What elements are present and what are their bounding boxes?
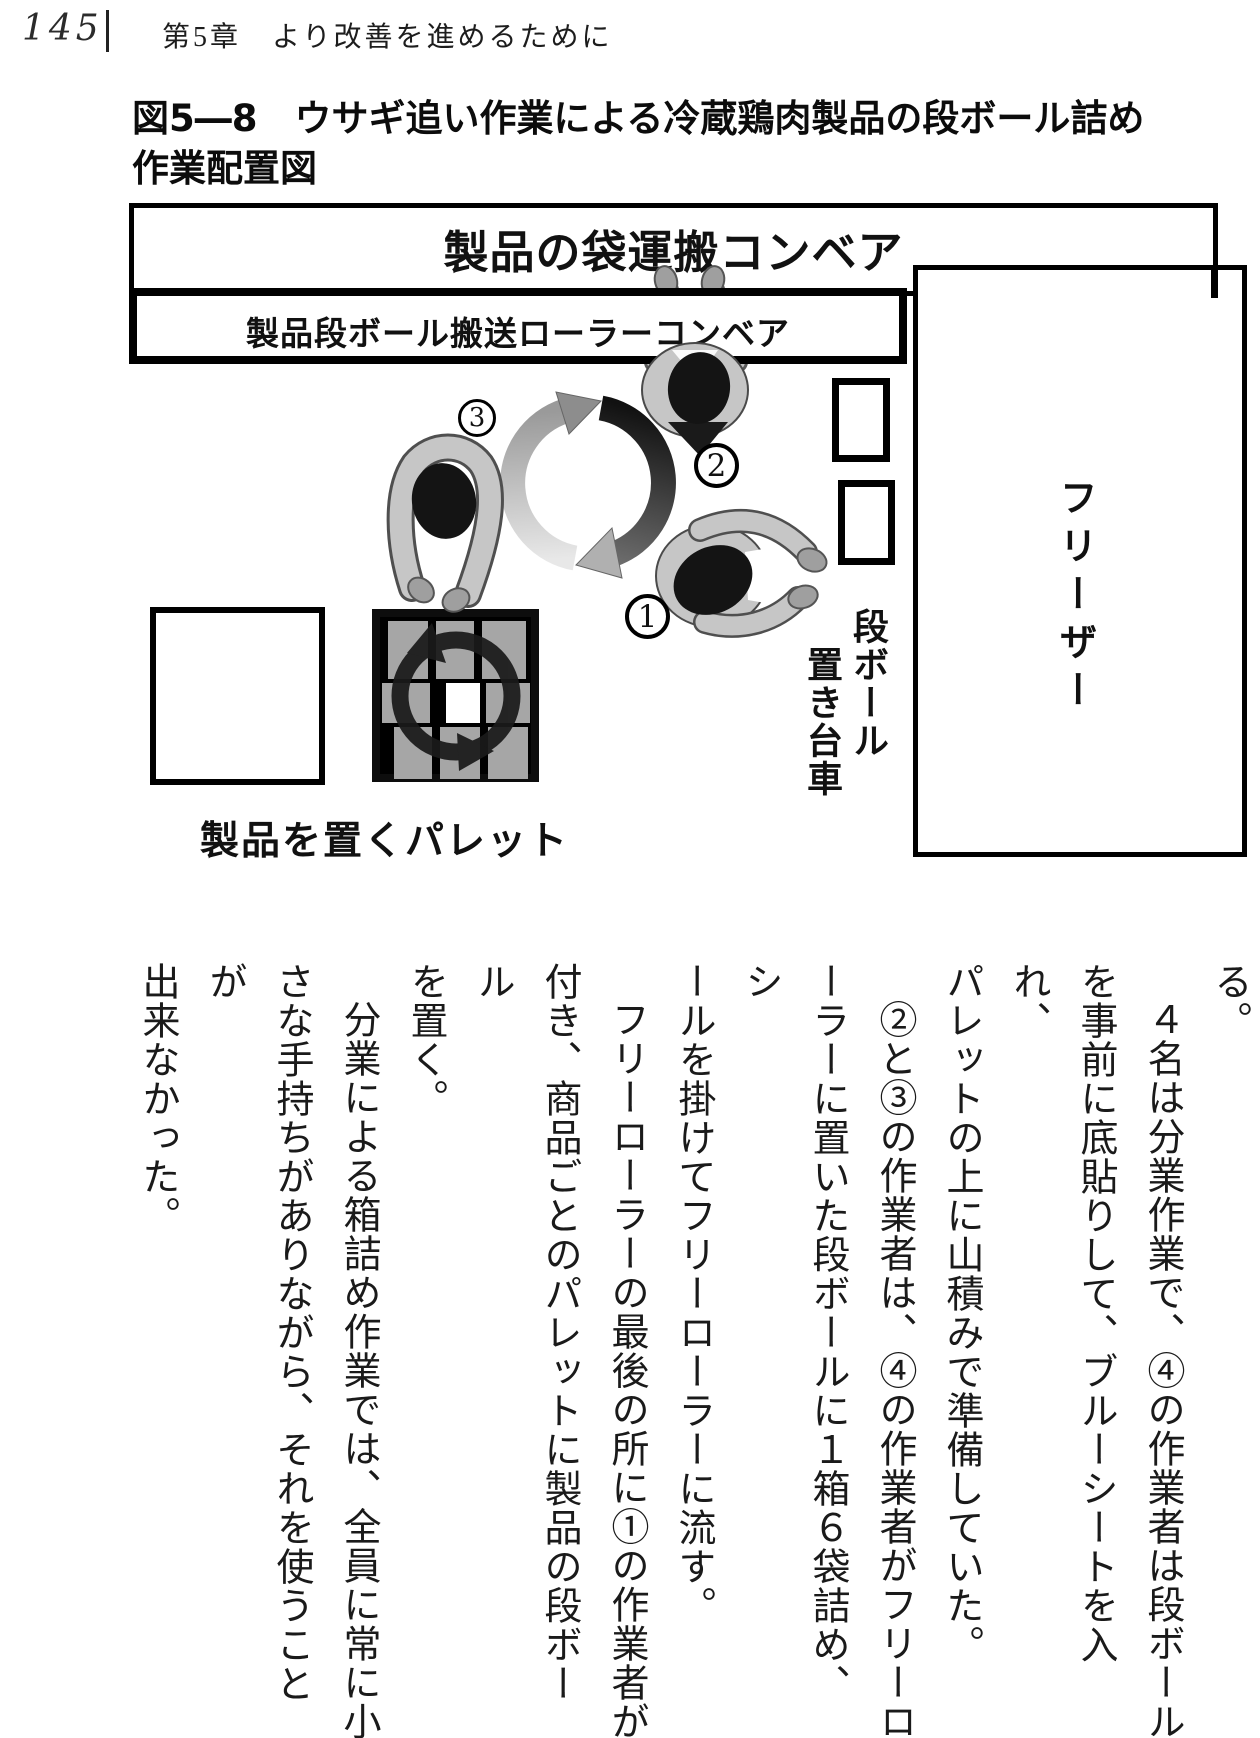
text-column: ②と③の作業者は、④の作業者がフリーロ xyxy=(860,962,927,1738)
worker-figure-3 xyxy=(401,448,490,617)
carton xyxy=(486,683,530,723)
worker2-number-badge: 2 xyxy=(694,443,739,488)
text-column: を事前に底貼りして、ブルーシートを入れ、 xyxy=(994,962,1128,1738)
freezer-label: フリーザー xyxy=(1048,478,1103,728)
text-column: る。 xyxy=(1195,962,1260,1738)
conveyor-edge-line xyxy=(1211,270,1218,298)
worker3-head xyxy=(406,458,482,544)
text-column: ールを掛けてフリーローラーに流す。 xyxy=(659,962,726,1738)
carton xyxy=(436,621,474,679)
pallet-label: 製品を置くパレット xyxy=(200,810,569,866)
worker1-hand xyxy=(794,544,830,576)
roller-conveyor-box: 製品段ボール搬送ローラーコンベア xyxy=(129,288,907,364)
rotation-arrowhead-light-end xyxy=(556,392,601,434)
carton xyxy=(488,727,528,779)
text-column: さな手持ちがありながら、それを使うことが xyxy=(190,962,324,1738)
worker2-number: 2 xyxy=(707,448,727,484)
cardboard-box-1 xyxy=(832,378,890,462)
bag-conveyor-label: 製品の袋運搬コンベア xyxy=(443,216,903,291)
page-number: 145 xyxy=(22,8,103,49)
pallet-center-gap xyxy=(446,683,480,723)
text-column: ４名は分業作業で、④の作業者は段ボール xyxy=(1128,962,1195,1738)
text-column: を置く。 xyxy=(391,962,458,1738)
carton xyxy=(482,621,526,679)
text-column: 分業による箱詰め作業では、全員に常に小 xyxy=(324,962,391,1738)
worker1-number: 1 xyxy=(638,599,658,635)
body-text: る。４名は分業作業で、④の作業者は段ボールを事前に底貼りして、ブルーシートを入れ… xyxy=(120,962,1260,1738)
worker1-number-badge: 1 xyxy=(625,594,670,639)
text-column: パレットの上に山積みで準備していた。 xyxy=(927,962,994,1738)
rotation-arrow-circle xyxy=(513,392,664,578)
carton xyxy=(394,727,432,779)
worker1-head xyxy=(661,532,764,629)
text-column: ーラーに置いた段ボールに１箱６袋詰め、シ xyxy=(726,962,860,1738)
empty-pallet-box xyxy=(150,607,325,785)
worker3-hand xyxy=(403,573,439,608)
text-column: ②改善後の３名によるウサギ追い作業 xyxy=(120,962,123,1738)
cardboard-cart-label: 段ボール 置き台車 xyxy=(798,608,890,828)
book-page: 145 第5章 より改善を進めるために 図5―8 ウサギ追い作業による冷蔵鶏肉製… xyxy=(0,0,1260,1738)
worker3-number: 3 xyxy=(469,403,486,433)
carton xyxy=(382,683,430,723)
carton xyxy=(388,621,428,679)
roller-conveyor-label: 製品段ボール搬送ローラーコンベア xyxy=(246,307,790,356)
figure-title-line1: 図5―8 ウサギ追い作業による冷蔵鶏肉製品の段ボール詰め xyxy=(132,88,1144,142)
text-column: 出来なかった。 xyxy=(123,962,190,1738)
worker3-number-badge: 3 xyxy=(458,399,496,437)
cardboard-box-2 xyxy=(838,480,895,565)
header-divider xyxy=(106,10,109,52)
chapter-header: 第5章 より改善を進めるために xyxy=(162,15,612,55)
carton xyxy=(440,727,480,779)
text-column: フリーローラーの最後の所に①の作業者が xyxy=(592,962,659,1738)
loaded-pallet xyxy=(372,609,539,782)
figure-title-line2: 作業配置図 xyxy=(132,138,317,192)
text-column: 付き、商品ごとのパレットに製品の段ボール xyxy=(458,962,592,1738)
rotation-arrowhead-dark-end xyxy=(576,528,622,578)
